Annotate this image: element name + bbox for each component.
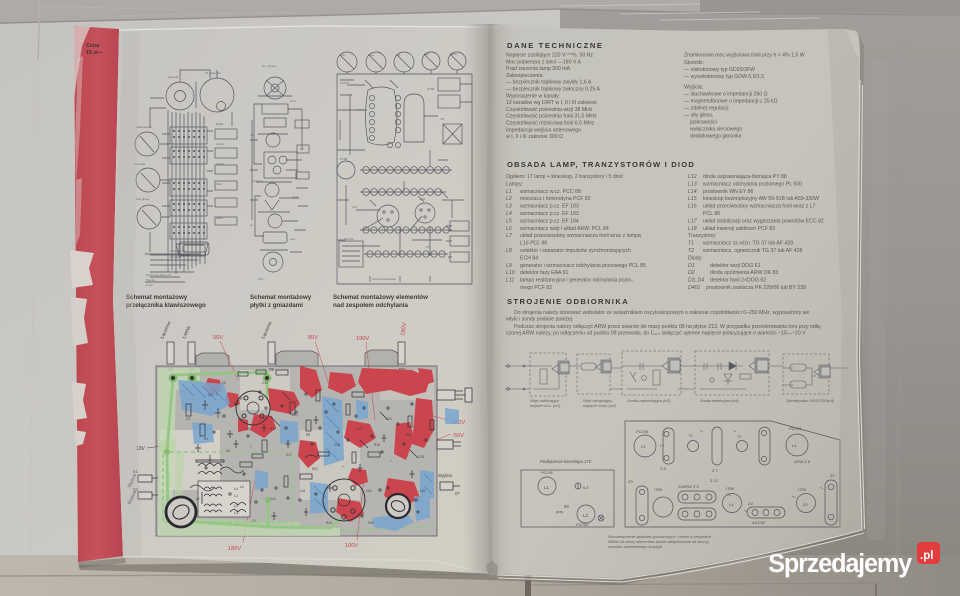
svg-text:.pl: .pl bbox=[920, 550, 933, 562]
svg-text:Sprzedajemy: Sprzedajemy bbox=[768, 550, 913, 578]
svg-text:15 zł—: 15 zł— bbox=[86, 50, 104, 56]
svg-text:Cena: Cena bbox=[86, 43, 100, 49]
